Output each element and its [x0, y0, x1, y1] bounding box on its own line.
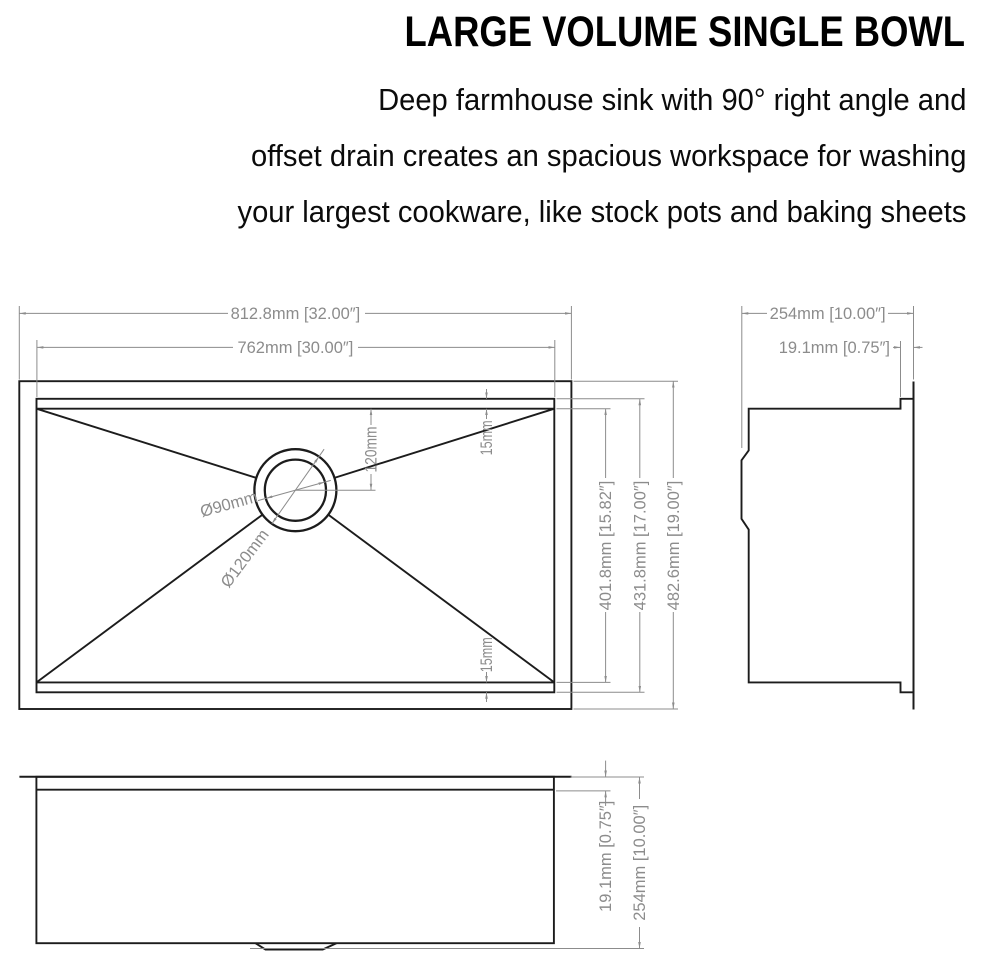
svg-text:Ø120mm: Ø120mm [217, 526, 272, 591]
svg-text:762mm [30.00″]: 762mm [30.00″] [237, 339, 353, 357]
svg-text:431.8mm [17.00″]: 431.8mm [17.00″] [631, 481, 649, 611]
svg-text:482.6mm [19.00″]: 482.6mm [19.00″] [665, 481, 683, 611]
svg-text:254mm [10.00″]: 254mm [10.00″] [631, 805, 649, 921]
svg-text:254mm [10.00″]: 254mm [10.00″] [770, 305, 886, 323]
svg-text:15mm: 15mm [478, 637, 496, 672]
svg-text:401.8mm [15.82″]: 401.8mm [15.82″] [597, 481, 615, 611]
svg-text:120mm: 120mm [363, 427, 381, 473]
svg-text:15mm: 15mm [478, 420, 496, 455]
svg-text:812.8mm [32.00″]: 812.8mm [32.00″] [231, 305, 361, 323]
svg-text:19.1mm [0.75″]: 19.1mm [0.75″] [597, 801, 615, 912]
svg-text:Ø90mm: Ø90mm [198, 488, 259, 521]
svg-text:19.1mm [0.75″]: 19.1mm [0.75″] [779, 339, 890, 357]
